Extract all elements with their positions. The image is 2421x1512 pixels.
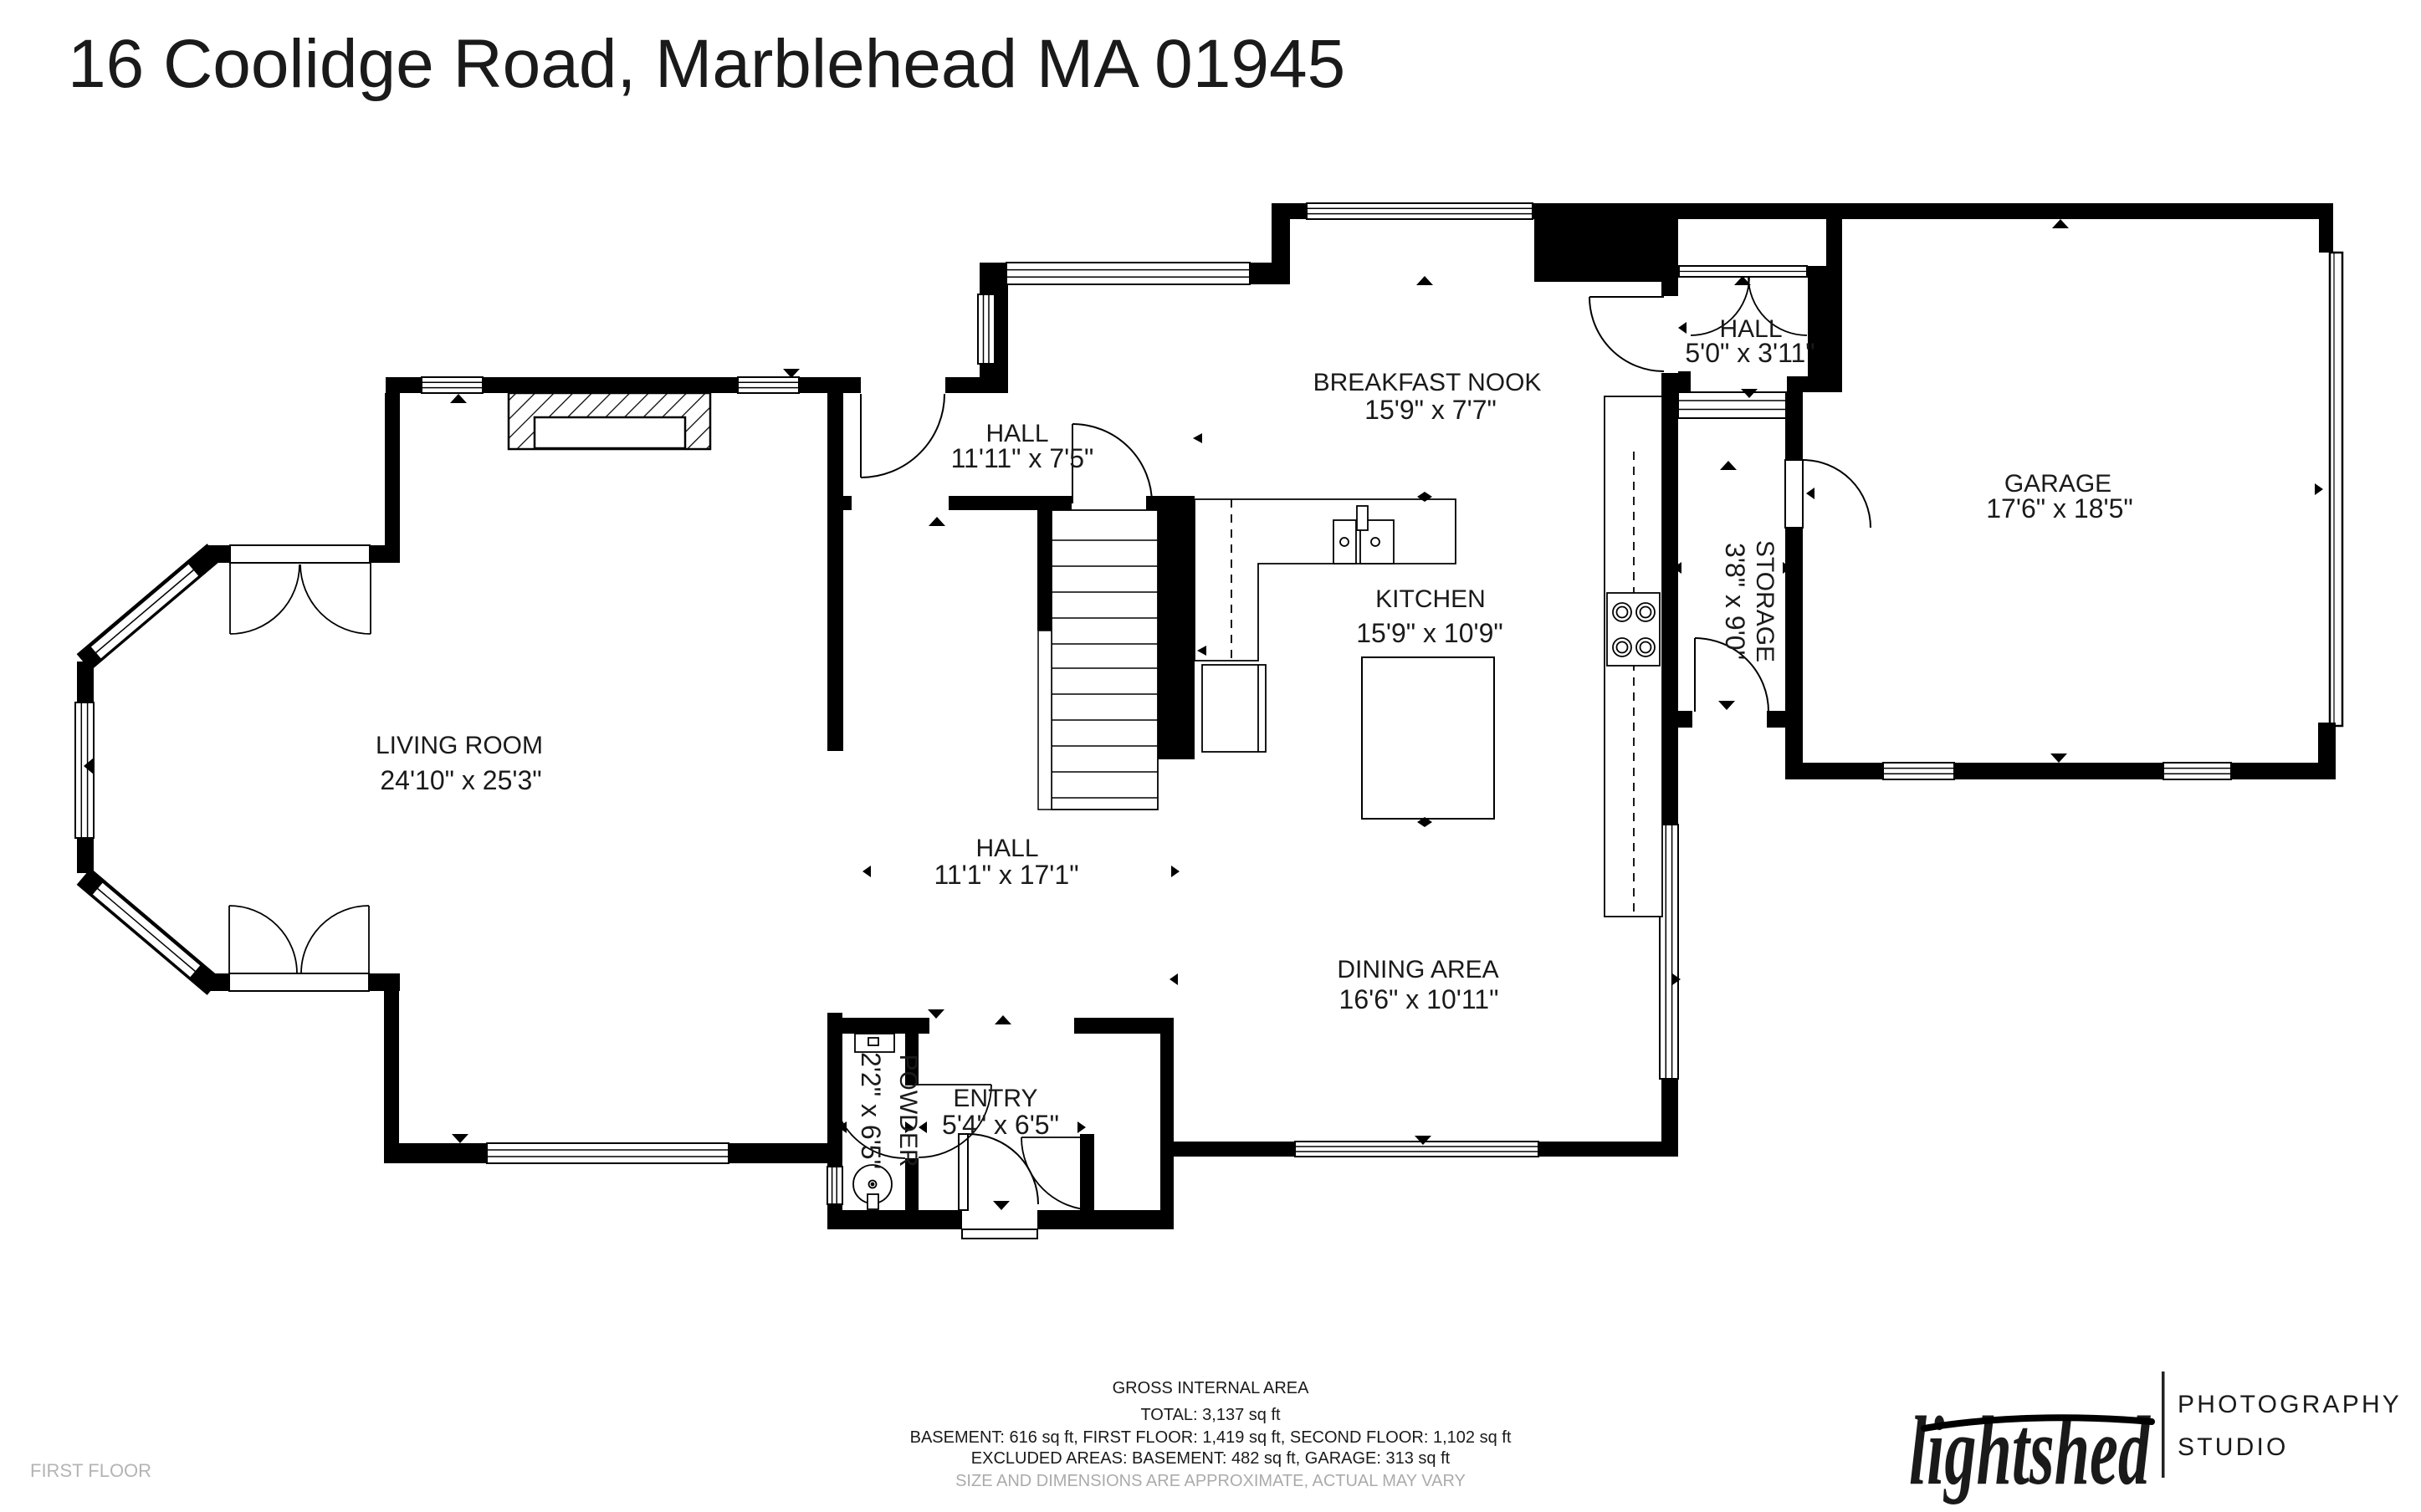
svg-text:3'8" x 9'0": 3'8" x 9'0": [1720, 543, 1750, 660]
svg-text:DINING AREA: DINING AREA: [1337, 956, 1498, 983]
svg-text:LIVING ROOM: LIVING ROOM: [376, 732, 543, 759]
svg-text:17'6" x 18'5": 17'6" x 18'5": [1986, 493, 2133, 524]
svg-text:KITCHEN: KITCHEN: [1375, 585, 1486, 613]
svg-text:BASEMENT: 616 sq ft, FIRST FLO: BASEMENT: 616 sq ft, FIRST FLOOR: 1,419 …: [910, 1428, 1512, 1447]
svg-text:HALL: HALL: [975, 835, 1038, 862]
svg-text:16'6" x 10'11": 16'6" x 10'11": [1339, 984, 1499, 1014]
svg-text:STORAGE: STORAGE: [1751, 540, 1779, 662]
svg-text:2'2" x 6'5": 2'2" x 6'5": [856, 1052, 886, 1169]
svg-text:lightshed: lightshed: [1909, 1396, 2151, 1505]
svg-text:16 Coolidge Road, Marblehead M: 16 Coolidge Road, Marblehead MA 01945: [68, 26, 1345, 102]
svg-text:EXCLUDED AREAS: BASEMENT: 482: EXCLUDED AREAS: BASEMENT: 482 sq ft, GAR…: [971, 1449, 1451, 1468]
svg-text:FIRST FLOOR: FIRST FLOOR: [30, 1460, 151, 1481]
svg-text:15'9" x 7'7": 15'9" x 7'7": [1364, 395, 1497, 425]
svg-text:15'9" x 10'9": 15'9" x 10'9": [1356, 618, 1503, 648]
svg-text:5'0" x 3'11": 5'0" x 3'11": [1685, 338, 1814, 368]
svg-text:24'10" x 25'3": 24'10" x 25'3": [380, 765, 541, 795]
svg-text:11'11" x 7'5": 11'11" x 7'5": [951, 443, 1094, 473]
svg-text:ENTRY: ENTRY: [953, 1085, 1037, 1112]
svg-text:5'4" x 6'5": 5'4" x 6'5": [942, 1110, 1059, 1140]
svg-text:SIZE AND DIMENSIONS ARE APPROX: SIZE AND DIMENSIONS ARE APPROXIMATE, ACT…: [955, 1472, 1466, 1490]
svg-text:POWDER: POWDER: [894, 1055, 922, 1167]
svg-text:GROSS INTERNAL AREA: GROSS INTERNAL AREA: [1113, 1379, 1310, 1397]
svg-text:STUDIO: STUDIO: [2178, 1433, 2289, 1461]
svg-text:BREAKFAST NOOK: BREAKFAST NOOK: [1313, 369, 1542, 396]
svg-text:TOTAL: 3,137 sq ft: TOTAL: 3,137 sq ft: [1140, 1406, 1281, 1424]
svg-text:11'1" x 17'1": 11'1" x 17'1": [934, 860, 1078, 890]
svg-text:PHOTOGRAPHY: PHOTOGRAPHY: [2178, 1391, 2402, 1418]
